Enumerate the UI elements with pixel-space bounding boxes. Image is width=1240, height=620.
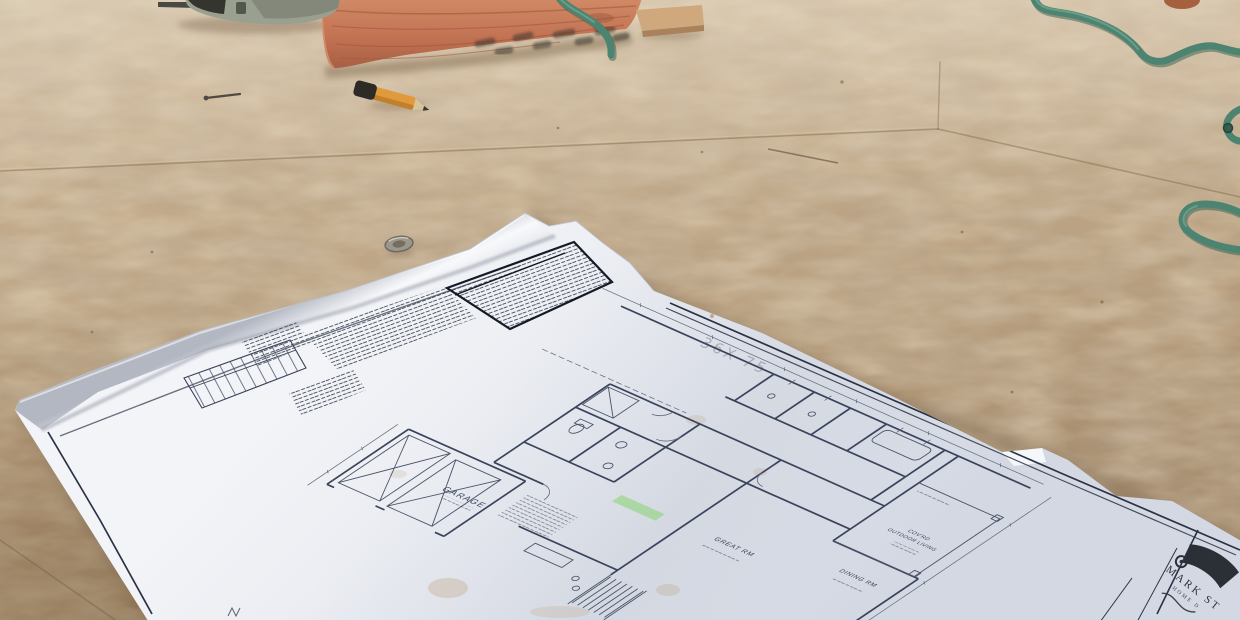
construction-site-photo: 36X 75: [0, 0, 1240, 620]
osb-haze-top: [0, 0, 1240, 200]
drill-detail: [236, 2, 246, 14]
photo-canvas: 36X 75: [0, 0, 1240, 620]
hose-end-fitting: [1224, 124, 1233, 133]
nail-head: [204, 96, 209, 101]
